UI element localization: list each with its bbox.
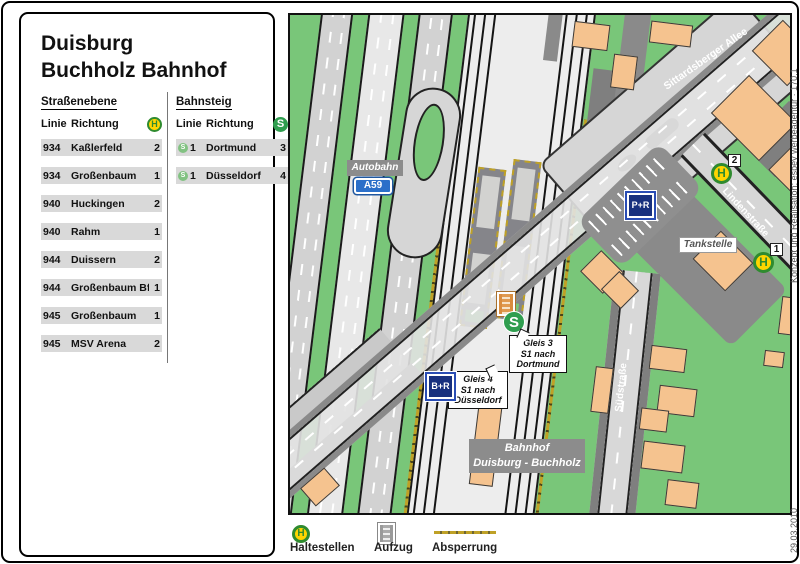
bahnhof-label-line1: Bahnhof bbox=[469, 441, 585, 456]
legend-haltestelle-icon: H bbox=[292, 525, 310, 543]
section-bahnsteig: Bahnsteig bbox=[176, 96, 232, 110]
row-gleis: 4 bbox=[275, 170, 286, 182]
row-linie: 934 bbox=[43, 170, 71, 182]
row-linie: S1 bbox=[178, 170, 206, 182]
sbahn-mini-icon: S bbox=[178, 171, 188, 181]
table-row: 934Kaßlerfeld2 bbox=[41, 139, 162, 156]
tankstelle-label: Tankstelle bbox=[679, 237, 737, 253]
gleis4-label: Gleis 4 S1 nach Düsseldorf bbox=[448, 371, 508, 409]
gleis4-line1: Gleis 4 bbox=[452, 374, 504, 385]
credit-date: 29.03.2010 bbox=[789, 491, 799, 553]
legend-aufzug-label: Aufzug bbox=[374, 542, 413, 554]
page-frame: Duisburg Buchholz Bahnhof Straßenebene L… bbox=[1, 1, 799, 563]
legend-absperrung-label: Absperrung bbox=[432, 542, 497, 554]
row-steig: 2 bbox=[149, 142, 160, 154]
row-steig: 1 bbox=[149, 282, 160, 294]
table-row: S1 Dortmund 3 bbox=[176, 139, 288, 156]
row-richtung: Großenbaum bbox=[71, 310, 149, 322]
legend-absperrung-line bbox=[434, 531, 496, 534]
a59-badge: A59 bbox=[354, 178, 392, 194]
row-richtung: Kaßlerfeld bbox=[71, 142, 149, 154]
building bbox=[610, 54, 638, 91]
row-linie: S1 bbox=[178, 142, 206, 154]
map-legend: H Haltestellen Aufzug Absperrung bbox=[290, 520, 610, 562]
timetable-columns: Straßenebene Linie Richtung H 934Kaßlerf… bbox=[41, 92, 288, 363]
table-row: 945MSV Arena2 bbox=[41, 335, 162, 352]
row-linie: 934 bbox=[43, 142, 71, 154]
park-and-ride-icon: P+R bbox=[627, 193, 654, 218]
row-linie: 945 bbox=[43, 310, 71, 322]
row-richtung: Duissern bbox=[71, 254, 149, 266]
street-table-header: Linie Richtung H bbox=[41, 116, 162, 132]
row-line-number: 1 bbox=[190, 170, 196, 182]
row-linie: 944 bbox=[43, 254, 71, 266]
row-steig: 1 bbox=[149, 170, 160, 182]
autobahn-label: Autobahn bbox=[347, 160, 403, 176]
platform-surface bbox=[511, 168, 535, 222]
building bbox=[649, 345, 688, 373]
row-richtung: MSV Arena bbox=[71, 338, 149, 350]
sbahn-icon: S bbox=[273, 117, 288, 132]
table-row: 940Rahm1 bbox=[41, 223, 162, 240]
bus-stop-1-number: 1 bbox=[770, 243, 783, 256]
row-linie: 945 bbox=[43, 338, 71, 350]
ramp-island bbox=[408, 102, 450, 184]
station-title-line1: Duisburg bbox=[41, 30, 226, 57]
info-panel: Duisburg Buchholz Bahnhof Straßenebene L… bbox=[19, 12, 275, 557]
row-line-number: 1 bbox=[190, 142, 196, 154]
row-steig: 2 bbox=[149, 254, 160, 266]
platform-rows: S1 Dortmund 3 S1 Düsseldorf 4 bbox=[176, 139, 288, 184]
row-linie: 940 bbox=[43, 198, 71, 210]
platform-table-header: Linie Richtung S bbox=[176, 116, 288, 132]
row-steig: 2 bbox=[149, 338, 160, 350]
col-header-richtung: Richtung bbox=[206, 118, 273, 130]
gleis3-label: Gleis 3 S1 nach Dortmund bbox=[509, 335, 567, 373]
sbahn-mini-icon: S bbox=[178, 143, 188, 153]
credit-agency: Konzept und Realisation: espey werbeagen… bbox=[789, 13, 799, 283]
row-richtung: Rahm bbox=[71, 226, 149, 238]
bahnhof-label-line2: Duisburg - Buchholz bbox=[469, 456, 585, 471]
page-title: Duisburg Buchholz Bahnhof bbox=[41, 30, 226, 84]
platform-table: Bahnsteig Linie Richtung S S1 Dortmund 3… bbox=[167, 92, 288, 363]
bahnhof-label: Bahnhof Duisburg - Buchholz bbox=[469, 439, 585, 473]
table-row: 934Großenbaum1 bbox=[41, 167, 162, 184]
gleis4-line2: S1 nach bbox=[452, 385, 504, 396]
legend-haltestellen-label: Haltestellen bbox=[290, 542, 355, 554]
station-map: Autobahn A59 Sittardsberger Allee Linden… bbox=[288, 13, 792, 515]
col-header-richtung: Richtung bbox=[71, 118, 147, 130]
row-richtung: Huckingen bbox=[71, 198, 149, 210]
col-header-linie: Linie bbox=[41, 118, 71, 130]
building bbox=[639, 407, 669, 432]
row-richtung: Großenbaum bbox=[71, 170, 149, 182]
elevator-pictogram bbox=[380, 525, 393, 542]
gleis3-line3: Dortmund bbox=[513, 359, 563, 370]
section-strassenebene: Straßenebene bbox=[41, 96, 117, 110]
row-steig: 1 bbox=[149, 310, 160, 322]
building bbox=[572, 21, 611, 51]
building bbox=[763, 350, 785, 368]
row-richtung: Großenbaum Bf bbox=[71, 282, 149, 294]
row-steig: 1 bbox=[149, 226, 160, 238]
table-row: 940Huckingen2 bbox=[41, 195, 162, 212]
table-row: 945Großenbaum1 bbox=[41, 307, 162, 324]
haltestelle-icon: H bbox=[147, 117, 162, 132]
bus-stop-2-number: 2 bbox=[728, 154, 741, 167]
row-steig: 2 bbox=[149, 198, 160, 210]
col-header-linie: Linie bbox=[176, 118, 206, 130]
row-linie: 944 bbox=[43, 282, 71, 294]
row-richtung: Düsseldorf bbox=[206, 170, 275, 182]
gleis3-line2: S1 nach bbox=[513, 349, 563, 360]
table-row: S1 Düsseldorf 4 bbox=[176, 167, 288, 184]
row-gleis: 3 bbox=[275, 142, 286, 154]
row-linie: 940 bbox=[43, 226, 71, 238]
street-level-table: Straßenebene Linie Richtung H 934Kaßlerf… bbox=[41, 92, 162, 363]
bike-and-ride-icon: B+R bbox=[427, 374, 454, 399]
station-title-line2: Buchholz Bahnhof bbox=[41, 57, 226, 84]
platform-surface bbox=[476, 175, 500, 229]
building bbox=[665, 479, 700, 509]
street-rows: 934Kaßlerfeld2 934Großenbaum1 940Hucking… bbox=[41, 139, 162, 352]
table-row: 944Duissern2 bbox=[41, 251, 162, 268]
row-richtung: Dortmund bbox=[206, 142, 275, 154]
gleis4-line3: Düsseldorf bbox=[452, 395, 504, 406]
building bbox=[640, 441, 685, 474]
table-row: 944Großenbaum Bf1 bbox=[41, 279, 162, 296]
